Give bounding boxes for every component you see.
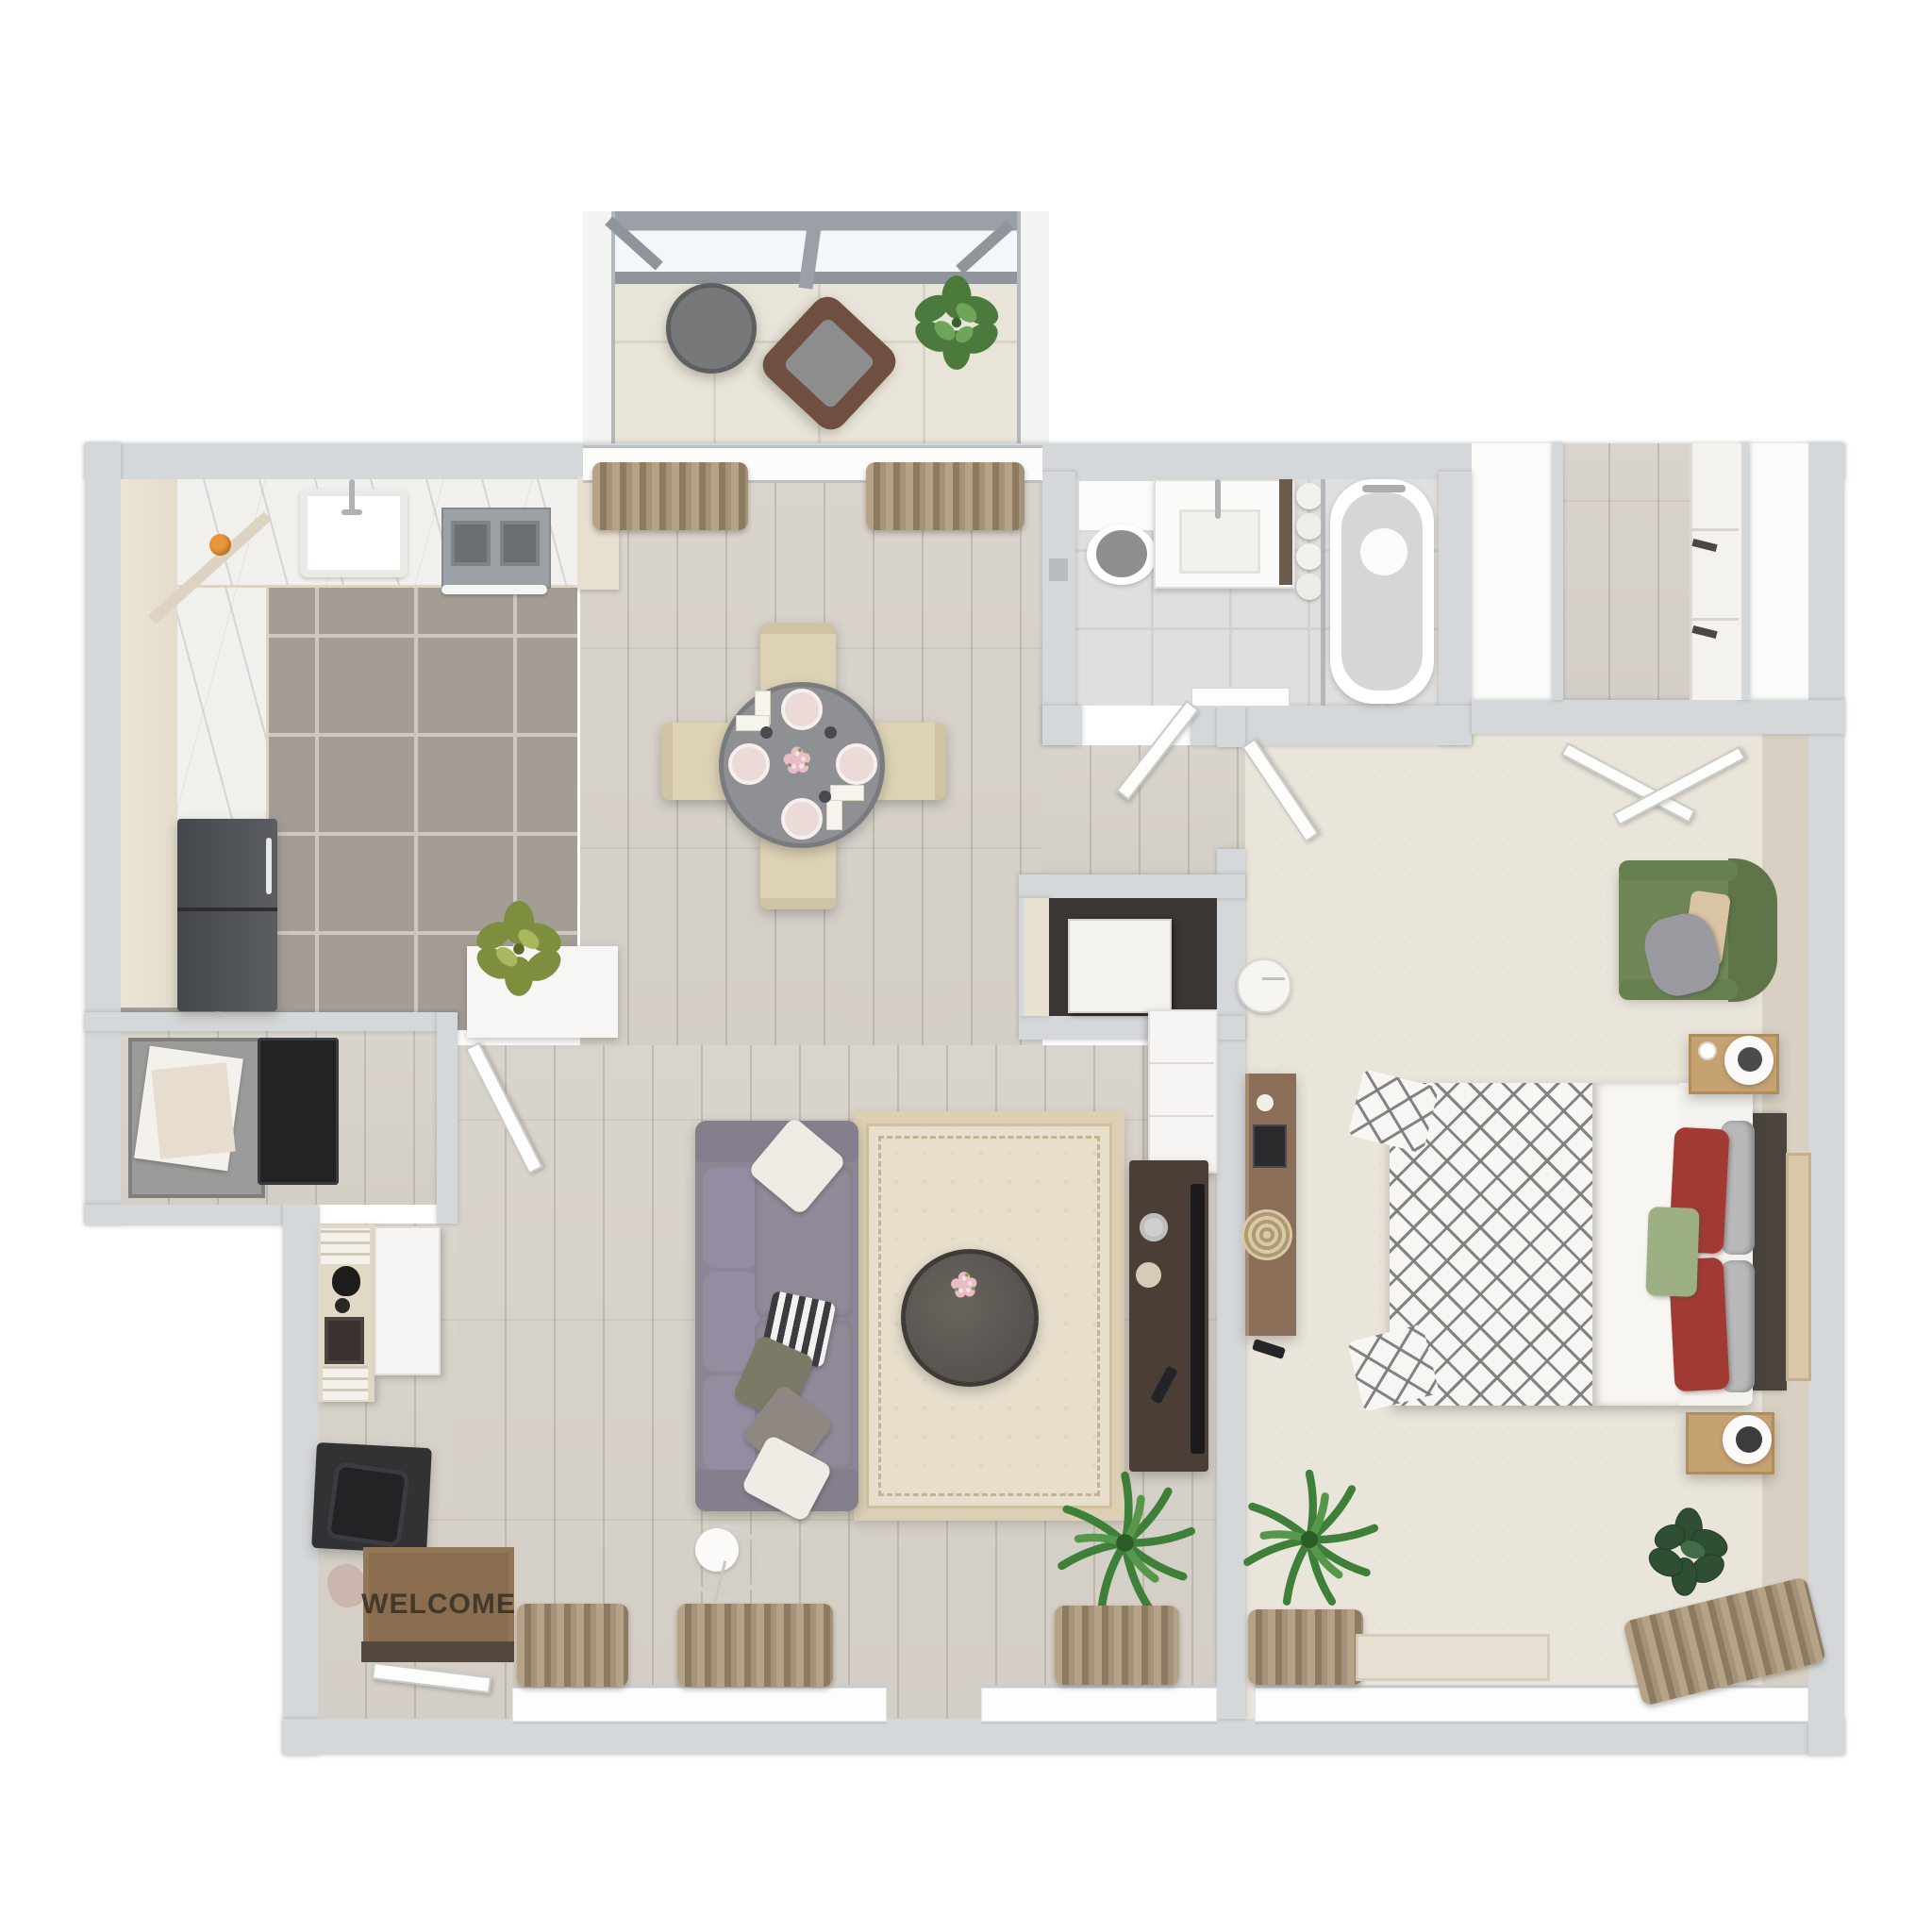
vanity-sink-basin bbox=[1179, 509, 1260, 574]
dining-cup-2 bbox=[824, 726, 837, 739]
washer bbox=[258, 1038, 339, 1185]
floor-plan: WELCOME bbox=[0, 0, 1932, 1932]
refrigerator-door-split bbox=[177, 908, 277, 911]
bedroom-rubber-plant bbox=[1637, 1500, 1740, 1604]
entry-cabinet bbox=[375, 1226, 441, 1375]
entry-vase bbox=[332, 1266, 360, 1296]
dresser-woven-circle bbox=[1241, 1209, 1292, 1260]
plate-top bbox=[781, 689, 823, 730]
towel-roll-4 bbox=[1296, 574, 1323, 600]
stove-burner-left bbox=[451, 521, 491, 566]
storage-cabinet-lines-2 bbox=[1148, 1115, 1214, 1117]
napkin-right bbox=[830, 785, 864, 801]
refrigerator-handles bbox=[266, 838, 272, 894]
wall-right bbox=[1808, 443, 1844, 1755]
wall-utility-top bbox=[1019, 874, 1245, 898]
void-right-of-closet bbox=[1750, 443, 1808, 700]
kitchen-faucet-spout bbox=[341, 509, 362, 515]
wall-bath-right bbox=[1439, 472, 1472, 745]
side-table-lamp-center bbox=[1738, 1047, 1762, 1072]
void-left-of-closet bbox=[1472, 443, 1552, 700]
wall-entry-left bbox=[283, 1205, 318, 1755]
orange-fruit bbox=[209, 534, 231, 556]
bath-mat bbox=[1191, 687, 1291, 708]
wall-closet-left bbox=[1552, 443, 1563, 700]
oven-handle bbox=[441, 585, 547, 594]
towel-hook bbox=[1049, 558, 1068, 581]
wall-kitchen-laundry bbox=[85, 1012, 458, 1031]
kitchen-left-cabinet-band bbox=[121, 479, 179, 1008]
wall-laundry-right bbox=[437, 1012, 458, 1224]
balcony-plant bbox=[908, 274, 1006, 372]
entry-box bbox=[325, 1317, 364, 1364]
dining-cup-1 bbox=[760, 726, 773, 739]
side-table-cup bbox=[1698, 1041, 1717, 1060]
storage-cabinet-lines bbox=[1148, 1062, 1214, 1064]
curtain-living-1 bbox=[517, 1604, 628, 1687]
window-sill-bedroom bbox=[1255, 1685, 1808, 1724]
robot-vacuum-line bbox=[1262, 977, 1285, 980]
storage-cabinet bbox=[1148, 1009, 1218, 1174]
towel-roll-1 bbox=[1296, 483, 1323, 509]
refrigerator bbox=[177, 819, 277, 1011]
vanity-faucet bbox=[1215, 479, 1221, 519]
vanity-side-cabinet bbox=[1279, 479, 1292, 585]
wall-bath-bottom-a bbox=[1042, 706, 1082, 745]
window-sill-living-a bbox=[512, 1685, 887, 1724]
curtain-living-2 bbox=[677, 1604, 833, 1687]
bathtub-basin bbox=[1341, 492, 1423, 691]
floor-lamp-shade bbox=[695, 1528, 739, 1572]
plate-left bbox=[728, 743, 770, 785]
entry-books-top bbox=[321, 1228, 370, 1264]
bedroom-palm-plant bbox=[1238, 1468, 1381, 1611]
closet-drawer-unit bbox=[1690, 443, 1741, 700]
utility-closet-door-strip bbox=[1024, 898, 1049, 1016]
wall-below-closet bbox=[1472, 700, 1844, 734]
dining-curtain-left bbox=[592, 462, 748, 530]
console-bowl-cream bbox=[1136, 1262, 1161, 1288]
bed-pillow-green bbox=[1645, 1207, 1699, 1297]
nightstand-lamp-bottom-center bbox=[1736, 1426, 1762, 1453]
balcony-round-table bbox=[666, 283, 757, 374]
dining-centerpiece-flowers bbox=[774, 737, 821, 784]
stove-burner-right bbox=[500, 521, 540, 566]
tub-faucet bbox=[1362, 485, 1406, 492]
entry-ball bbox=[335, 1298, 350, 1313]
dining-cup-3 bbox=[819, 791, 831, 803]
towel-roll-2 bbox=[1296, 513, 1323, 540]
tub-headrest bbox=[1360, 528, 1407, 575]
dresser-book bbox=[1253, 1124, 1287, 1168]
plate-right bbox=[836, 743, 877, 785]
bedroom-wall-dresser bbox=[1245, 1074, 1296, 1336]
tv-panel bbox=[1191, 1184, 1205, 1454]
plate-bottom bbox=[781, 798, 823, 840]
desk-chair bbox=[325, 1461, 411, 1548]
balcony-side-wall-left bbox=[583, 211, 615, 447]
green-armchair-arm-top bbox=[1619, 860, 1738, 881]
green-armchair-back bbox=[1728, 858, 1777, 1002]
coffee-table-flowers bbox=[941, 1262, 987, 1307]
headboard bbox=[1751, 1113, 1787, 1391]
entry-books-bottom bbox=[323, 1366, 368, 1400]
towel-roll-3 bbox=[1296, 543, 1323, 570]
welcome-mat-text: WELCOME bbox=[361, 1589, 516, 1621]
dining-curtain-right bbox=[866, 462, 1024, 530]
toilet-seat-lid bbox=[1096, 530, 1147, 577]
entry-door-frame bbox=[361, 1641, 514, 1662]
dresser-cup bbox=[1257, 1094, 1274, 1111]
window-sill-living-b bbox=[981, 1685, 1217, 1724]
closet-drawer-line-1 bbox=[1690, 528, 1739, 531]
living-palm-plant bbox=[1052, 1470, 1198, 1616]
curtain-bedroom-1 bbox=[1248, 1609, 1363, 1685]
robot-vacuum bbox=[1237, 958, 1291, 1013]
closet-drawer-line-2 bbox=[1690, 618, 1739, 621]
balcony-side-wall-right bbox=[1017, 211, 1049, 447]
console-bowl-gray bbox=[1140, 1213, 1168, 1241]
wall-bath-left bbox=[1042, 472, 1075, 745]
water-heater bbox=[1068, 919, 1172, 1013]
curtain-living-3 bbox=[1055, 1606, 1179, 1685]
wall-left bbox=[85, 443, 121, 1224]
bedroom-door-mat bbox=[1356, 1634, 1550, 1681]
wall-art-leaning bbox=[1786, 1153, 1811, 1381]
sofa-back-cushion-1 bbox=[703, 1168, 759, 1268]
kitchen-plant bbox=[464, 894, 574, 1004]
shower-glass bbox=[1321, 479, 1325, 706]
linen-stack-2 bbox=[151, 1062, 235, 1159]
